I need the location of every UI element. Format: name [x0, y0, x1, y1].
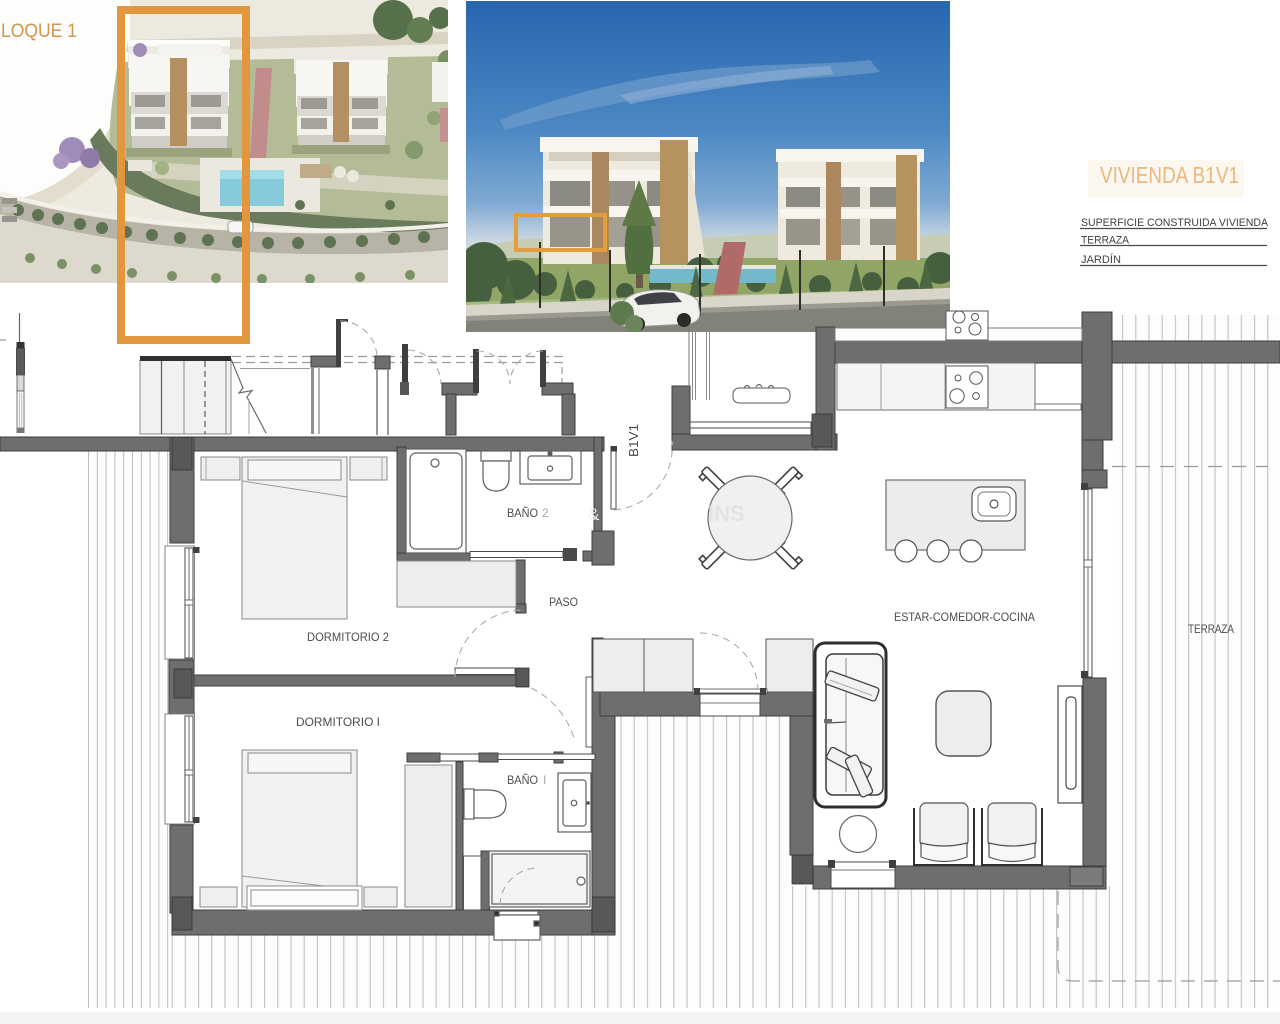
svg-text:B1V1: B1V1	[627, 424, 641, 457]
svg-text:VIVIENDA B1V1: VIVIENDA B1V1	[1100, 162, 1239, 188]
svg-text:LOQUE 1: LOQUE 1	[1, 21, 77, 42]
svg-text:BAÑO: BAÑO	[507, 506, 538, 520]
svg-text:INS: INS	[708, 501, 745, 526]
svg-text:ESTAR-COMEDOR-COCINA: ESTAR-COMEDOR-COCINA	[894, 610, 1035, 624]
svg-text:JARDÍN: JARDÍN	[1081, 253, 1121, 266]
svg-text:2: 2	[542, 506, 549, 520]
svg-text:DORMITORIO I: DORMITORIO I	[296, 715, 380, 729]
svg-text:PASO: PASO	[549, 595, 578, 609]
svg-text:&: &	[588, 505, 600, 524]
svg-text:SUPERFICIE CONSTRUIDA VIVIENDA: SUPERFICIE CONSTRUIDA VIVIENDA	[1081, 217, 1269, 229]
svg-text:TERRAZA: TERRAZA	[1188, 622, 1234, 636]
svg-text:TERRAZA: TERRAZA	[1081, 235, 1130, 247]
svg-text:DORMITORIO 2: DORMITORIO 2	[307, 630, 389, 644]
svg-text:BAÑO: BAÑO	[507, 773, 538, 787]
svg-text:I: I	[543, 773, 546, 787]
